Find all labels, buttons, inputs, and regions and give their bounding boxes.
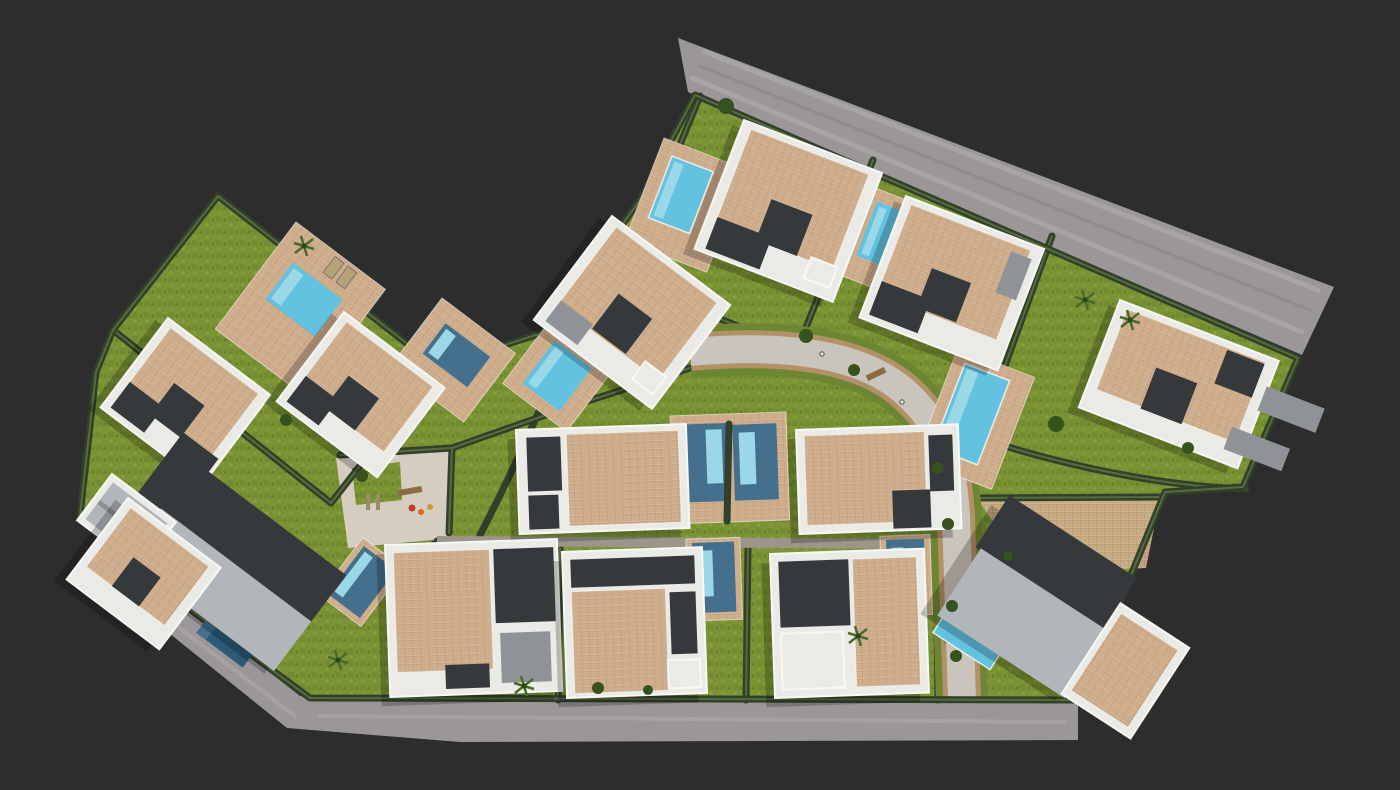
roof-patio (528, 495, 559, 530)
aerial-development-render (0, 0, 1400, 790)
palm-crown (302, 244, 307, 249)
palm-crown (856, 634, 861, 639)
dark-roof (778, 559, 850, 627)
tree (932, 462, 944, 474)
palm-crown (336, 658, 341, 663)
tree (942, 518, 954, 530)
swing-post-right (376, 494, 380, 510)
villa-roof-tiles (566, 430, 681, 526)
tree (280, 414, 292, 426)
palm-crown (1128, 318, 1133, 323)
dark-roof (570, 555, 695, 587)
stair-block (668, 659, 701, 688)
pool-shelf (739, 432, 757, 485)
dark-roof (493, 547, 556, 623)
tree (950, 650, 962, 662)
tree (1048, 416, 1064, 432)
tree (946, 600, 958, 612)
villa-9 (376, 539, 563, 706)
tree (592, 682, 604, 694)
villa-7 (507, 424, 690, 543)
villa-roof-tiles (852, 557, 920, 687)
villa-roof-tiles (571, 588, 669, 693)
street-lamp (900, 400, 904, 404)
roof-patio (669, 591, 697, 654)
palm-crown (1083, 298, 1088, 303)
tree (356, 470, 368, 482)
villa-roof-tiles (393, 549, 493, 672)
tree (718, 98, 734, 114)
swing-post-left (366, 494, 370, 510)
palm-crown (522, 684, 527, 689)
tree (1003, 551, 1013, 561)
villa-8 (787, 424, 962, 543)
play-equipment-red (409, 505, 416, 512)
roof-terrace (500, 631, 552, 683)
play-equipment-yellow (427, 504, 433, 510)
tree (1182, 442, 1194, 454)
pool-divider-hedge (727, 424, 729, 521)
tree (848, 364, 860, 376)
villa-10 (553, 547, 707, 707)
tree (643, 685, 653, 695)
roof-patio (526, 436, 562, 491)
street-lamp (820, 352, 824, 356)
villa-11 (761, 549, 929, 708)
pool-shelf (706, 429, 724, 484)
play-equipment-orange (418, 509, 424, 515)
tree (799, 329, 813, 343)
roof-terrace (781, 632, 845, 690)
roof-patio (892, 489, 931, 528)
roof-patio (445, 663, 490, 689)
